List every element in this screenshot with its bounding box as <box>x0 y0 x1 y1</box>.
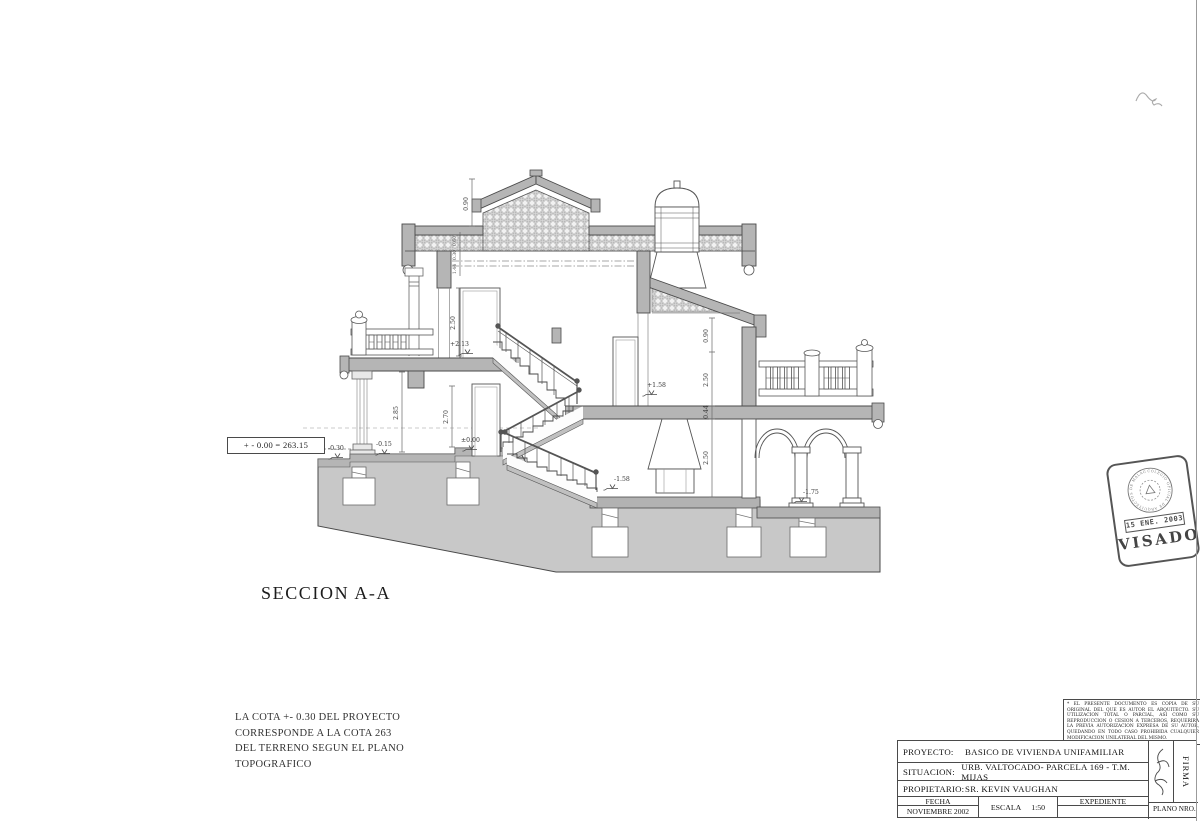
porch-floor-slab <box>757 507 880 518</box>
dim-right-top: 0.90 <box>703 329 710 343</box>
propietario-value: SR. KEVIN VAUGHAN <box>965 784 1058 794</box>
level-entry-mid: -0.15 <box>376 441 392 448</box>
terrace-slab <box>565 406 880 419</box>
footnote-line: TOPOGRAFICO <box>235 757 404 773</box>
footnote-line: LA COTA +- 0.30 DEL PROYECTO <box>235 710 404 726</box>
dim-lower-right: 2.50 <box>703 451 710 465</box>
situacion-label: SITUACION: <box>903 767 961 777</box>
firma-label: FIRMA <box>1181 756 1191 788</box>
upper-porch-column <box>405 268 423 356</box>
dim-eave-a: 0.60 <box>452 236 458 246</box>
proyecto-value: BASICO DE VIVIENDA UNIFAMILIAR <box>965 747 1124 757</box>
fecha-cell: FECHA NOVIEMBRE 2002 <box>898 797 979 817</box>
upper-floor-slab <box>344 358 516 371</box>
titleblock-row-propietario: PROPIETARIO: SR. KEVIN VAUGHAN <box>898 781 1148 797</box>
dim-lower-left: 2.70 <box>443 410 450 424</box>
escala-cell: ESCALA 1:50 <box>979 797 1058 817</box>
plano-cell: PLANO NRO. <box>1148 803 1198 819</box>
titleblock-row-proyecto: PROYECTO: BASICO DE VIVIENDA UNIFAMILIAR <box>898 741 1148 763</box>
plan-sheet: 0.90 0.60 0.30 1.44 2.50 2.85 2.70 0.90 … <box>0 0 1200 821</box>
fecha-value: NOVIEMBRE 2002 <box>898 806 978 817</box>
dim-left-column: 2.85 <box>393 406 400 420</box>
expediente-cell: EXPEDIENTE <box>1058 797 1148 817</box>
dim-eave-b: 0.30 <box>452 250 458 260</box>
datum-note-box: + - 0.00 = 263.15 <box>227 437 325 454</box>
drop-beam <box>408 371 424 388</box>
cupola <box>648 181 706 288</box>
upper-right-wall <box>637 251 650 313</box>
section-title: SECCION A-A <box>261 583 391 604</box>
titleblock-bottom-band: FECHA NOVIEMBRE 2002 ESCALA 1:50 EXPEDIE… <box>898 797 1148 817</box>
seal-emblem-icon <box>1145 485 1155 494</box>
visado-stamp: COLEGIO OFICIAL DE ARQUITECTOS DE MALAGA… <box>1105 454 1200 568</box>
titleblock-row-situacion: SITUACION: URB. VALTOCADO- PARCELA 169 -… <box>898 763 1148 781</box>
level-ground: ±0.00 <box>461 437 480 444</box>
level-porch: -1.75 <box>803 489 819 496</box>
situacion-value: URB. VALTOCADO- PARCELA 169 - T.M. MIJAS <box>961 762 1148 782</box>
title-block: PROYECTO: BASICO DE VIVIENDA UNIFAMILIAR… <box>897 740 1197 818</box>
section-drawing: 0.90 0.60 0.30 1.44 2.50 2.85 2.70 0.90 … <box>0 0 1200 821</box>
dim-upper-room: 2.50 <box>450 316 457 330</box>
signature-cell <box>1148 741 1173 803</box>
dim-slab: 0.44 <box>703 405 710 419</box>
lower-left-column <box>350 371 375 454</box>
level-basement: -1.58 <box>614 476 630 483</box>
dim-gable: 0.90 <box>463 197 470 211</box>
right-exterior-wall <box>742 327 756 406</box>
seal: COLEGIO OFICIAL DE ARQUITECTOS DE MALAGA <box>1120 462 1180 519</box>
dim-eave-c: 1.44 <box>452 264 458 274</box>
porch-balustrade <box>759 340 873 397</box>
firma-cell: FIRMA <box>1173 741 1198 803</box>
propietario-label: PROPIETARIO: <box>903 784 965 794</box>
pencil-scribble <box>1136 93 1162 106</box>
escala-label: ESCALA <box>991 803 1021 812</box>
proyecto-label: PROYECTO: <box>903 747 965 757</box>
fecha-label: FECHA <box>898 797 978 806</box>
escala-value: 1:50 <box>1031 803 1045 812</box>
ridge-cap <box>530 170 542 176</box>
footnote-line: CORRESPONDE A LA COTA 263 <box>235 726 404 742</box>
level-terrace: +1.58 <box>647 382 666 389</box>
fireplace <box>648 419 701 493</box>
basement-floor-slab <box>590 497 760 508</box>
dim-right-room: 2.50 <box>703 373 710 387</box>
upper-left-wall <box>437 251 451 288</box>
terrace-balustrade <box>351 311 433 355</box>
ceiling-dash-lines <box>452 261 636 266</box>
sheet-right-border <box>1196 0 1197 821</box>
signature-scribble <box>1149 741 1174 801</box>
level-entry-low: -0.30 <box>328 445 344 452</box>
footnote-line: DEL TERRENO SEGUN EL PLANO <box>235 741 404 757</box>
expediente-label: EXPEDIENTE <box>1058 797 1148 806</box>
plano-label: PLANO NRO. <box>1153 805 1196 813</box>
level-upper-floor: +2.13 <box>450 341 469 348</box>
footnote: LA COTA +- 0.30 DEL PROYECTO CORRESPONDE… <box>235 710 404 772</box>
copyright-disclaimer: * EL PRESENTE DOCUMENTO ES COPIA DE SU O… <box>1063 699 1200 745</box>
